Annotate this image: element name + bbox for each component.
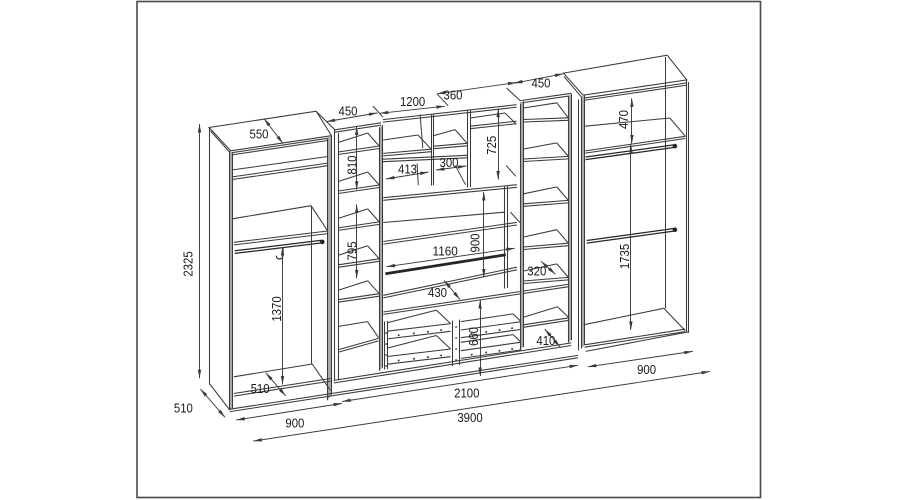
svg-text:450: 450 xyxy=(532,76,551,91)
svg-text:1200: 1200 xyxy=(400,94,425,109)
svg-text:470: 470 xyxy=(616,110,631,129)
svg-text:810: 810 xyxy=(344,156,359,175)
svg-text:550: 550 xyxy=(250,127,269,142)
svg-text:360: 360 xyxy=(444,88,463,103)
svg-text:430: 430 xyxy=(428,285,447,300)
svg-text:410: 410 xyxy=(536,333,555,348)
svg-text:1160: 1160 xyxy=(433,244,458,259)
svg-text:320: 320 xyxy=(527,263,546,278)
svg-text:900: 900 xyxy=(285,416,304,431)
svg-text:3900: 3900 xyxy=(457,410,482,425)
svg-text:2100: 2100 xyxy=(454,385,479,400)
svg-text:660: 660 xyxy=(466,327,481,346)
svg-text:300: 300 xyxy=(440,155,459,170)
svg-text:900: 900 xyxy=(637,362,656,377)
svg-text:1370: 1370 xyxy=(269,296,284,321)
svg-text:510: 510 xyxy=(251,381,270,396)
svg-text:1735: 1735 xyxy=(617,244,632,269)
svg-text:795: 795 xyxy=(344,242,359,261)
svg-text:450: 450 xyxy=(339,104,358,119)
svg-text:413: 413 xyxy=(398,162,417,177)
svg-text:510: 510 xyxy=(174,401,193,416)
svg-text:900: 900 xyxy=(468,234,483,253)
svg-text:725: 725 xyxy=(484,136,499,155)
svg-text:2325: 2325 xyxy=(181,251,196,276)
